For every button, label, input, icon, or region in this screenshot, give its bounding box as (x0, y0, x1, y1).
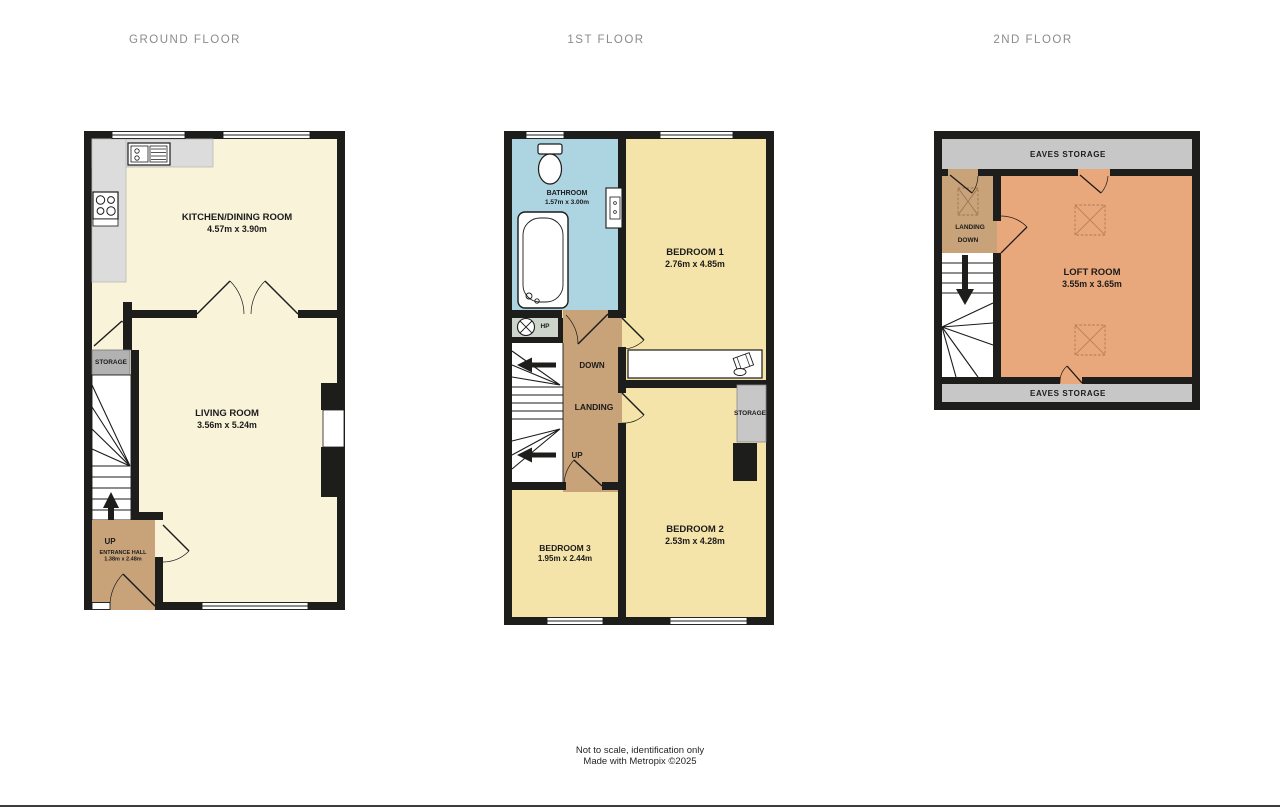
hob-icon (93, 192, 118, 226)
toilet-icon (538, 144, 562, 184)
ground-floor-plan: KITCHEN/DINING ROOM 4.57m x 3.90m LIVING… (84, 131, 345, 610)
hp-label: HP (540, 323, 549, 330)
wardrobe (628, 350, 762, 378)
eaves-storage-bottom-label: EAVES STORAGE (1030, 389, 1106, 398)
down-label: DOWN (579, 361, 604, 370)
storage-label: STORAGE (734, 410, 766, 417)
storage-label: STORAGE (95, 359, 127, 366)
landing-floor (563, 310, 622, 492)
bedroom2-label: BEDROOM 2 2.53m x 4.28m (665, 524, 725, 547)
entrance-hall-label: ENTRANCE HALL 1.38m x 2.48m (100, 551, 147, 564)
hp-cylinder-icon (518, 319, 535, 336)
landing-label: LANDING (575, 403, 614, 412)
up-label: UP (571, 451, 582, 460)
landing-label: LANDING (955, 224, 985, 231)
second-floor-plan: EAVES STORAGE LANDING DOWN LOFT ROOM 3.5… (934, 131, 1200, 410)
basin-cabinet-icon (606, 188, 622, 228)
floorplan-page: GROUND FLOOR 1ST FLOOR 2ND FLOOR (0, 0, 1280, 807)
kitchen-label: KITCHEN/DINING ROOM 4.57m x 3.90m (182, 212, 292, 235)
eaves-storage-top-label: EAVES STORAGE (1030, 150, 1106, 159)
bedroom3-label: BEDROOM 3 1.95m x 2.44m (538, 543, 592, 564)
second-floor-title: 2ND FLOOR (993, 34, 1072, 46)
bathroom-label: BATHROOM 1.57m x 3.00m (545, 190, 589, 207)
footer-disclaimer: Not to scale, identification only Made w… (576, 746, 704, 767)
sink-icon (128, 143, 170, 165)
bath-icon (518, 212, 568, 308)
first-floor-plan: BATHROOM 1.57m x 3.00m BEDROOM 1 2.76m x… (504, 131, 774, 625)
bedroom1-label: BEDROOM 1 2.76m x 4.85m (665, 247, 725, 270)
ground-floor-title: GROUND FLOOR (129, 34, 241, 46)
first-floor-title: 1ST FLOOR (567, 34, 644, 46)
ground-floor-drawing (84, 131, 345, 610)
up-label: UP (104, 537, 115, 546)
down-label: DOWN (958, 237, 979, 244)
loft-room-label: LOFT ROOM 3.55m x 3.65m (1062, 267, 1122, 290)
chimney-block (733, 443, 757, 481)
living-room-label: LIVING ROOM 3.56m x 5.24m (195, 408, 259, 431)
chimney-recess (321, 383, 345, 497)
